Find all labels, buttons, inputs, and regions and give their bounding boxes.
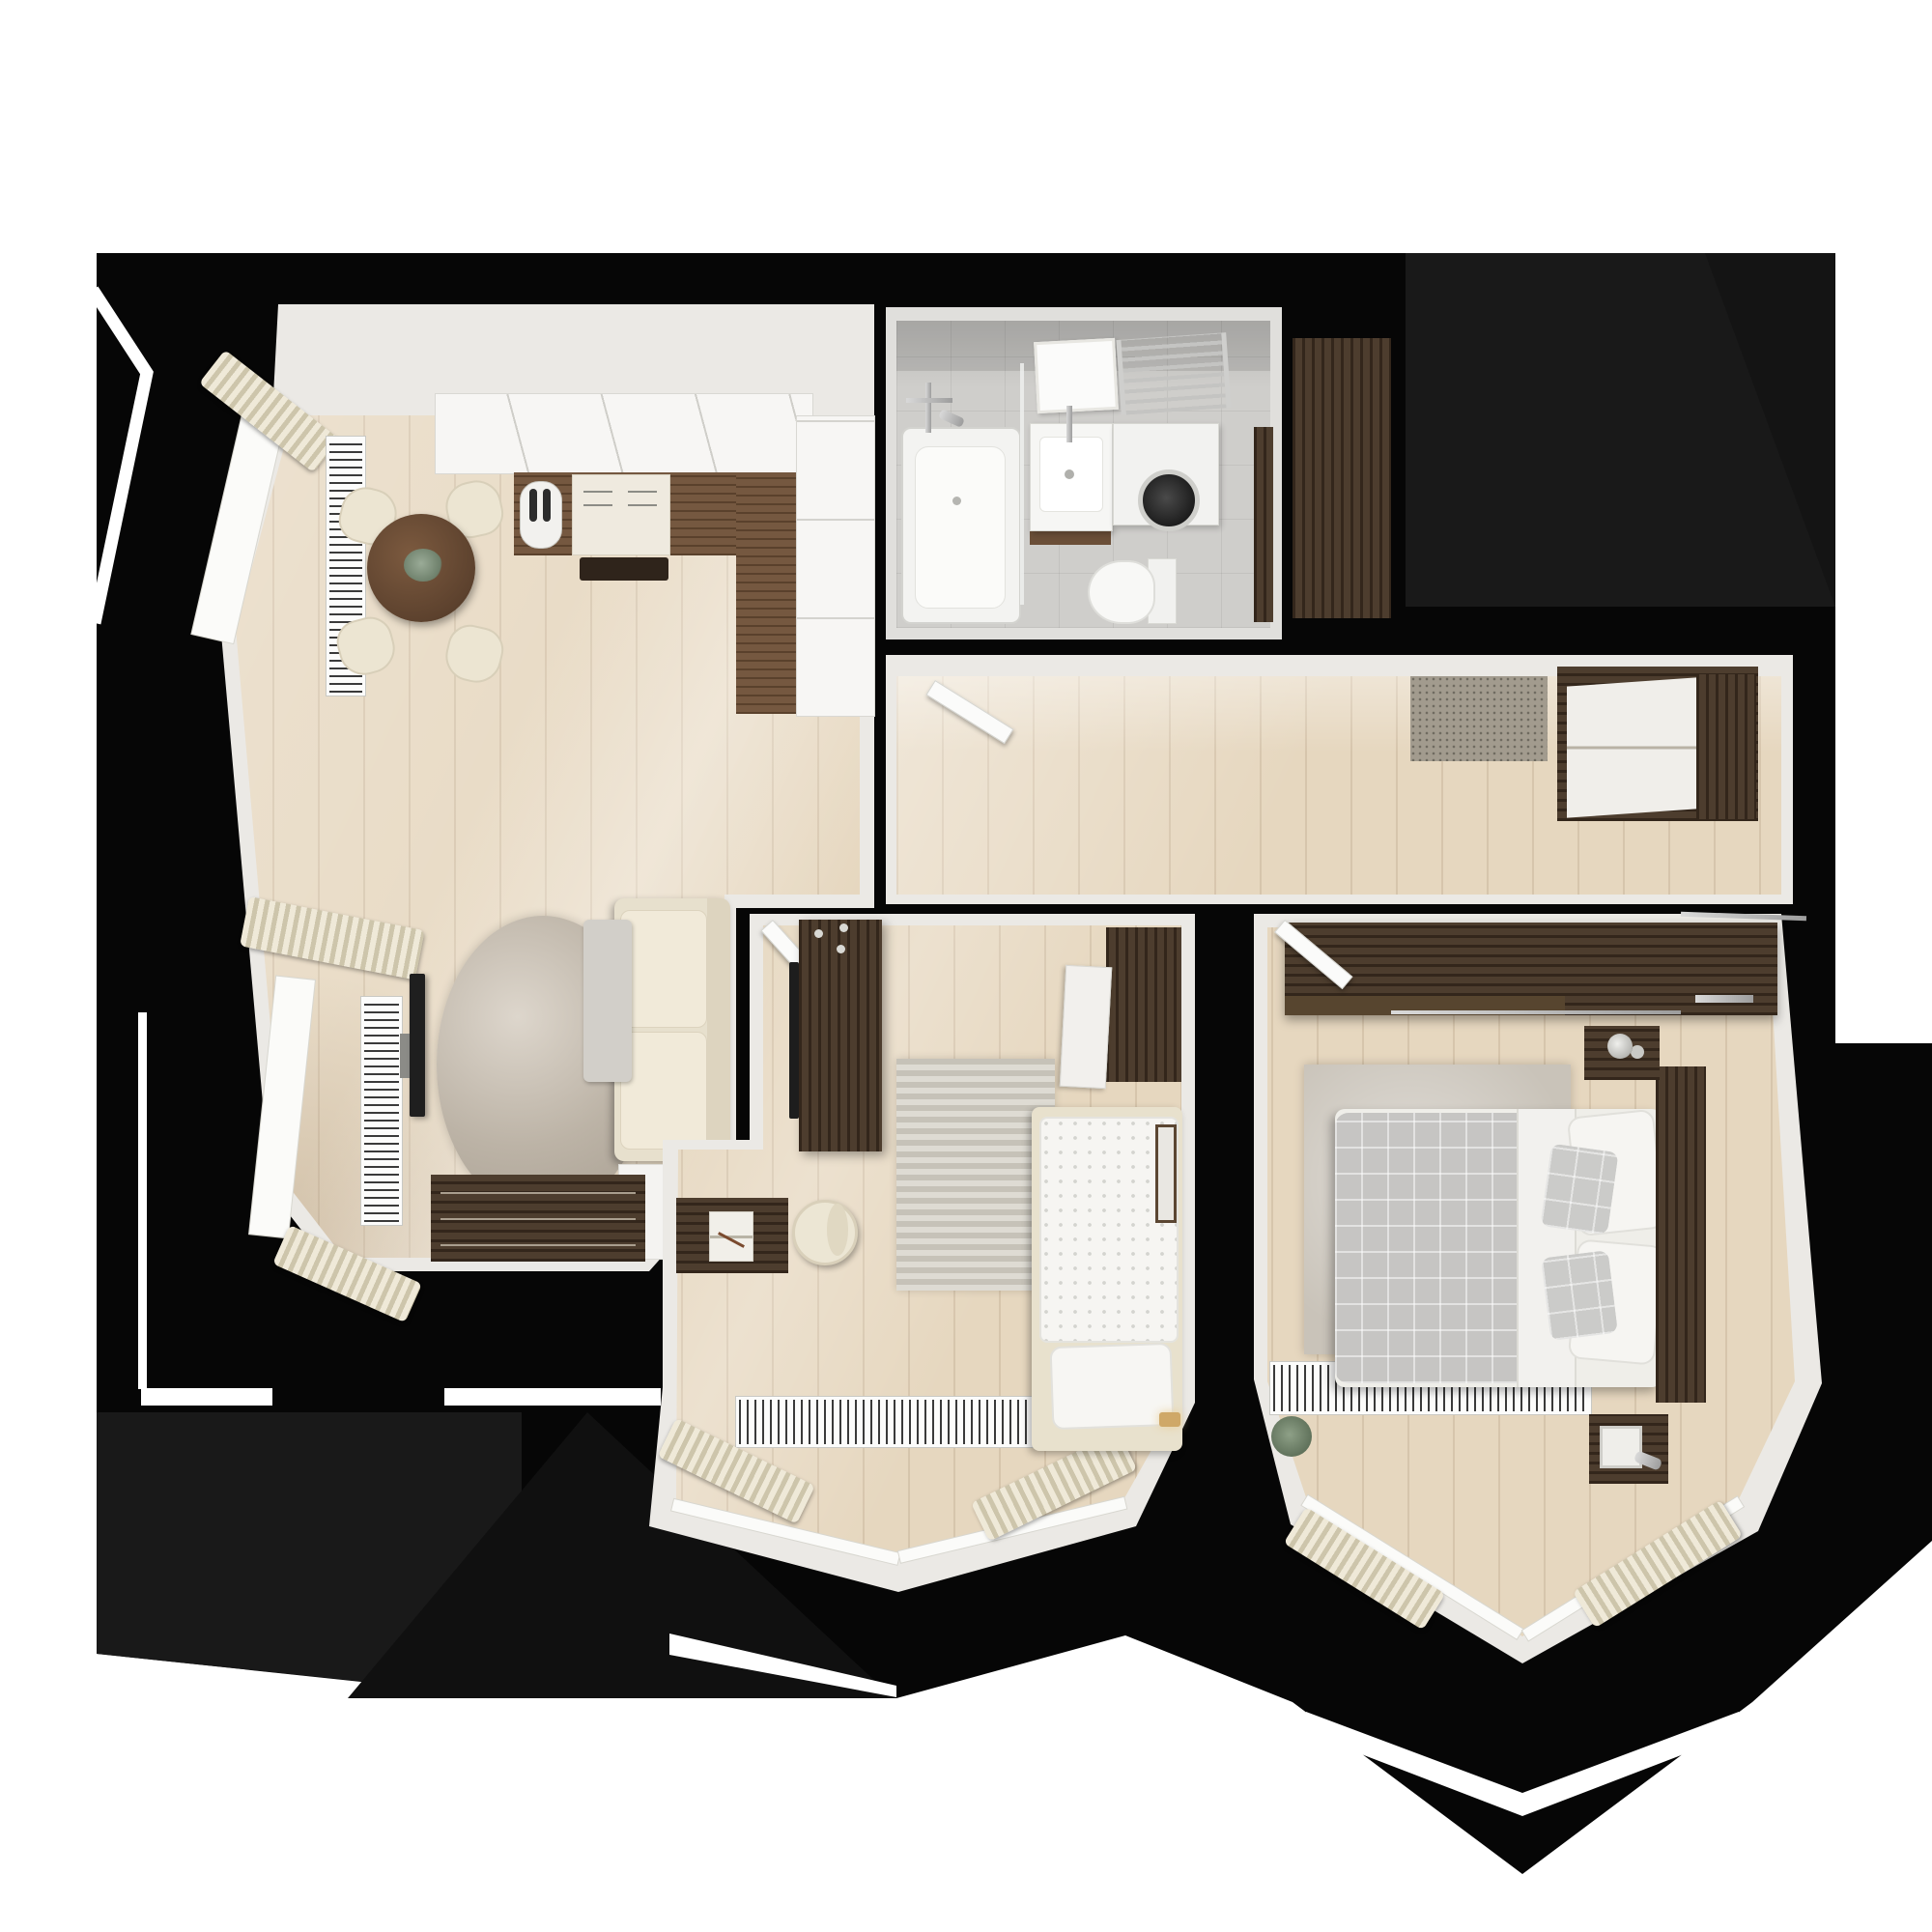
overbed-cabinet [1106,927,1181,1082]
kitchen-side-counter [736,472,796,714]
headboard [1656,1066,1706,1403]
basin-tap [1066,406,1072,442]
kitchen-tall-cabinet [796,415,875,717]
plaid-pillow-1 [1540,1144,1618,1236]
basin-drain [1065,469,1074,479]
sideboard [431,1175,645,1262]
kitchen-upper-cabinets [435,393,813,474]
wardrobe-handle [1695,995,1753,1003]
floorplan-canvas [0,0,1932,1932]
hall-wardrobe-doors [1567,677,1696,817]
range-hood [580,557,668,581]
tv [410,974,425,1117]
hall-closet [1293,338,1391,618]
shower-arm [906,398,952,403]
cooktop [572,474,670,555]
washing-machine-door [1138,469,1200,531]
doormat [1410,676,1548,761]
sill-shard-left [141,1388,272,1406]
shower-mixer [925,383,931,433]
picture-frame [1155,1124,1177,1223]
tv-panel [789,962,799,1119]
table-plant [404,549,442,582]
cabinet-door-open [1060,965,1113,1089]
single-bed-pillow [1050,1343,1175,1430]
towel-radiator [1116,332,1231,415]
plaid-blanket [1335,1113,1524,1383]
mirror [1034,338,1119,413]
sideboard-rails [440,1192,636,1194]
desk-chair-back [827,1204,848,1256]
master-plant [1271,1416,1312,1457]
sofa-cushion-1 [620,910,707,1028]
kettle-slots [529,489,537,522]
bathtub-drain [952,497,961,505]
kettle [520,481,562,549]
window-radiator-lower [361,997,402,1225]
sofa-backrest [707,898,730,1161]
bathtub-basin [915,446,1006,609]
sofa-cushion-2 [620,1032,707,1150]
bathroom-door [1254,427,1273,622]
small-bay-radiator [736,1397,1061,1447]
cooktop-burner-marks [583,491,612,493]
wall-lamp [1159,1412,1180,1427]
sill-shard-center [444,1388,661,1406]
wardrobe-rail [1391,1010,1681,1014]
toilet-bowl [1088,560,1155,624]
lamp-top [1607,1034,1633,1059]
glass-screen [1020,363,1024,605]
window-shard-left-line [138,1012,147,1389]
notebook [709,1211,753,1262]
plaid-pillow-2 [1541,1250,1618,1341]
wardrobe-with-tv [799,920,882,1151]
throw-blanket [583,920,632,1082]
wardrobe-knobs [814,929,823,938]
hall-wardrobe-side [1696,674,1756,819]
